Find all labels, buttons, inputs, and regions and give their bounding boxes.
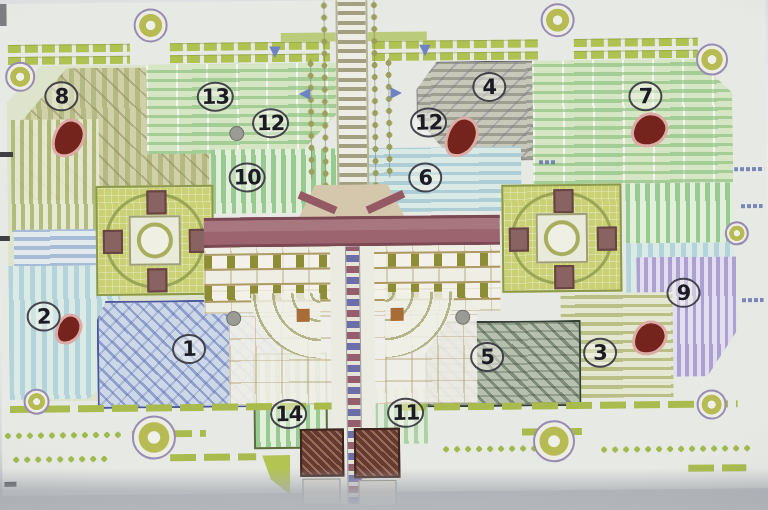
zone-label-badge: 3 [583, 338, 617, 368]
specimen-tree-marker [441, 113, 482, 161]
zone-label-badge: 1 [172, 334, 206, 364]
zone-label-badge: 9 [666, 278, 700, 308]
rosette-emblem [725, 221, 749, 245]
direction-chevron-icon: ◀ [298, 84, 310, 102]
direction-chevron-icon: ▼ [269, 42, 281, 60]
rosette-emblem [132, 415, 176, 459]
zone-label-badge: 14 [270, 399, 308, 429]
specimen-tree-marker [628, 109, 671, 152]
zone-label-badge: 11 [387, 398, 425, 428]
specimen-tree-marker [49, 115, 89, 161]
marker-layer: 123456789101112121314◀▶▼▼ [0, 0, 768, 510]
zone-label-badge: 13 [197, 82, 235, 112]
rosette-emblem [533, 420, 575, 462]
zone-label-badge: 5 [470, 342, 504, 372]
zone-label-badge: 4 [472, 72, 506, 102]
rosette-emblem [696, 43, 728, 75]
zone-label-badge: 8 [44, 81, 78, 111]
gray-dot-marker [226, 311, 241, 326]
zone-label-badge: 10 [228, 162, 266, 192]
direction-chevron-icon: ▼ [419, 41, 431, 59]
zone-label-badge: 6 [408, 162, 442, 192]
zone-label-badge: 7 [628, 81, 662, 111]
gray-dot-marker [229, 126, 244, 141]
site-plan-photo: 123456789101112121314◀▶▼▼ [0, 0, 768, 510]
zone-label-badge: 12 [410, 107, 448, 137]
specimen-tree-marker [629, 317, 670, 360]
rosette-emblem [23, 389, 49, 415]
rosette-emblem [540, 3, 574, 37]
rosette-emblem [5, 62, 35, 92]
rosette-emblem [133, 8, 167, 42]
gray-dot-marker [455, 310, 470, 325]
direction-chevron-icon: ▶ [390, 83, 402, 101]
master-plan-drawing: 123456789101112121314◀▶▼▼ [0, 0, 768, 504]
zone-label-badge: 12 [252, 108, 290, 138]
rosette-emblem [696, 389, 726, 419]
